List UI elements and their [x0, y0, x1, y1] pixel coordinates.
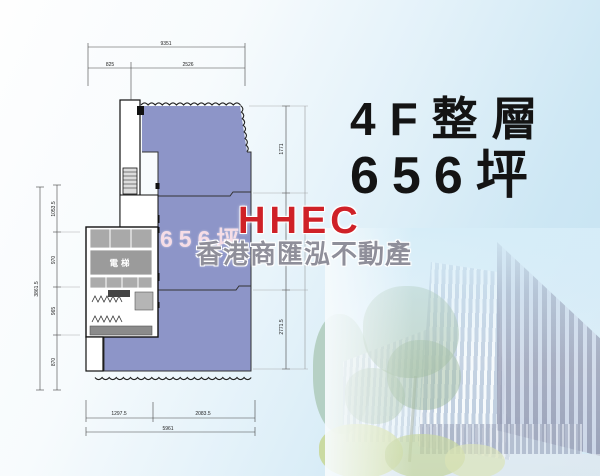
- dim-bottom-total: 5961: [162, 426, 173, 432]
- dim-top-total: 9351: [160, 41, 171, 47]
- headline-floor: 4F整層: [350, 96, 552, 142]
- dim-top-seg1: 825: [106, 62, 115, 68]
- dim-left-seg2: 970: [51, 256, 57, 265]
- dim-bottom-seg1: 1297.5: [111, 411, 127, 417]
- page: 電梯: [0, 0, 600, 476]
- agency-watermark: HHEC 香港商匯泓不動產: [196, 202, 412, 267]
- corner-column: [137, 106, 144, 115]
- dim-top-seg2: 2526: [182, 62, 193, 68]
- lower-corridor-strip: [86, 337, 103, 371]
- lobby-room: [120, 195, 158, 227]
- agency-company-name: 香港商匯泓不動產: [196, 241, 412, 267]
- dim-left-seg3: 965: [51, 307, 57, 316]
- curtainwall-top: [141, 103, 240, 105]
- dim-left-seg4: 870: [51, 358, 57, 367]
- elevator-label: 電梯: [109, 258, 132, 268]
- listing-headline: 4F整層 656坪: [350, 96, 552, 202]
- headline-area: 656坪: [350, 150, 552, 202]
- dim-right-seg2: 2771.5: [279, 319, 285, 335]
- dim-right-seg1: 1771: [279, 143, 285, 154]
- agency-logo-text: HHEC: [238, 202, 412, 240]
- dim-bottom-seg2: 2083.5: [195, 411, 211, 417]
- curtainwall-bottom: [95, 378, 251, 380]
- dim-left-total: 3861.5: [34, 281, 40, 297]
- dim-left-seg1: 1053.5: [51, 201, 57, 217]
